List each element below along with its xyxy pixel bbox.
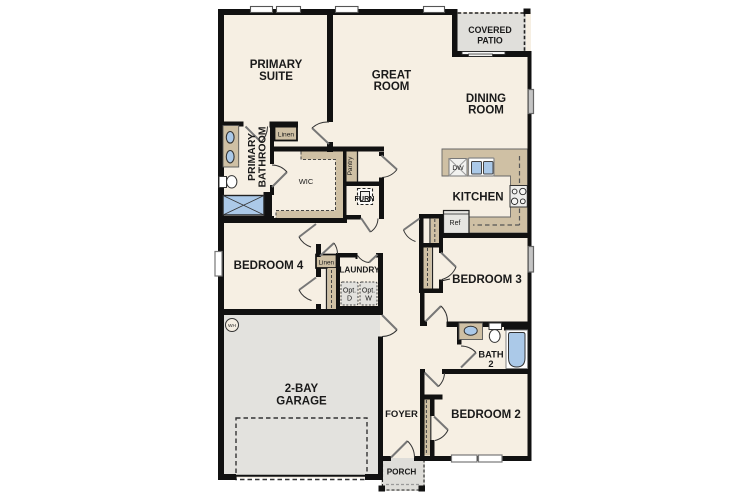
svg-text:PRIMARY: PRIMARY xyxy=(250,59,303,71)
svg-text:PATIO: PATIO xyxy=(477,36,503,46)
svg-text:FURN: FURN xyxy=(355,194,375,203)
svg-text:COVERED: COVERED xyxy=(468,25,512,35)
svg-text:Ref: Ref xyxy=(450,220,461,227)
svg-text:SUITE: SUITE xyxy=(259,71,293,83)
svg-text:BEDROOM 3: BEDROOM 3 xyxy=(452,274,522,286)
svg-text:Linen: Linen xyxy=(318,260,334,267)
svg-text:LAUNDRY: LAUNDRY xyxy=(339,265,380,275)
svg-text:PORCH: PORCH xyxy=(387,468,417,477)
svg-text:Linen: Linen xyxy=(278,132,294,139)
svg-text:KITCHEN: KITCHEN xyxy=(452,192,503,204)
svg-text:BEDROOM 2: BEDROOM 2 xyxy=(451,409,521,421)
svg-text:PRIMARYBATHROOM: PRIMARYBATHROOM xyxy=(246,126,269,187)
svg-text:Opt.: Opt. xyxy=(343,288,356,295)
svg-text:2: 2 xyxy=(488,359,493,369)
svg-text:WIC: WIC xyxy=(299,177,314,186)
svg-text:ROOM: ROOM xyxy=(374,81,410,93)
svg-text:GARAGE: GARAGE xyxy=(276,396,327,408)
svg-text:FOYER: FOYER xyxy=(385,409,418,420)
svg-text:2-BAY: 2-BAY xyxy=(285,383,319,395)
svg-text:W: W xyxy=(365,296,372,303)
svg-text:BEDROOM 4: BEDROOM 4 xyxy=(234,260,304,272)
svg-text:ROOM: ROOM xyxy=(468,105,504,117)
svg-text:GREAT: GREAT xyxy=(372,70,411,82)
svg-text:DW: DW xyxy=(452,165,464,172)
svg-text:Opt.: Opt. xyxy=(362,288,375,295)
svg-text:WH: WH xyxy=(228,323,237,329)
svg-text:Pantry: Pantry xyxy=(347,156,354,176)
svg-text:D: D xyxy=(347,296,352,303)
svg-text:BATH: BATH xyxy=(478,350,503,360)
svg-text:DINING: DINING xyxy=(466,93,506,105)
